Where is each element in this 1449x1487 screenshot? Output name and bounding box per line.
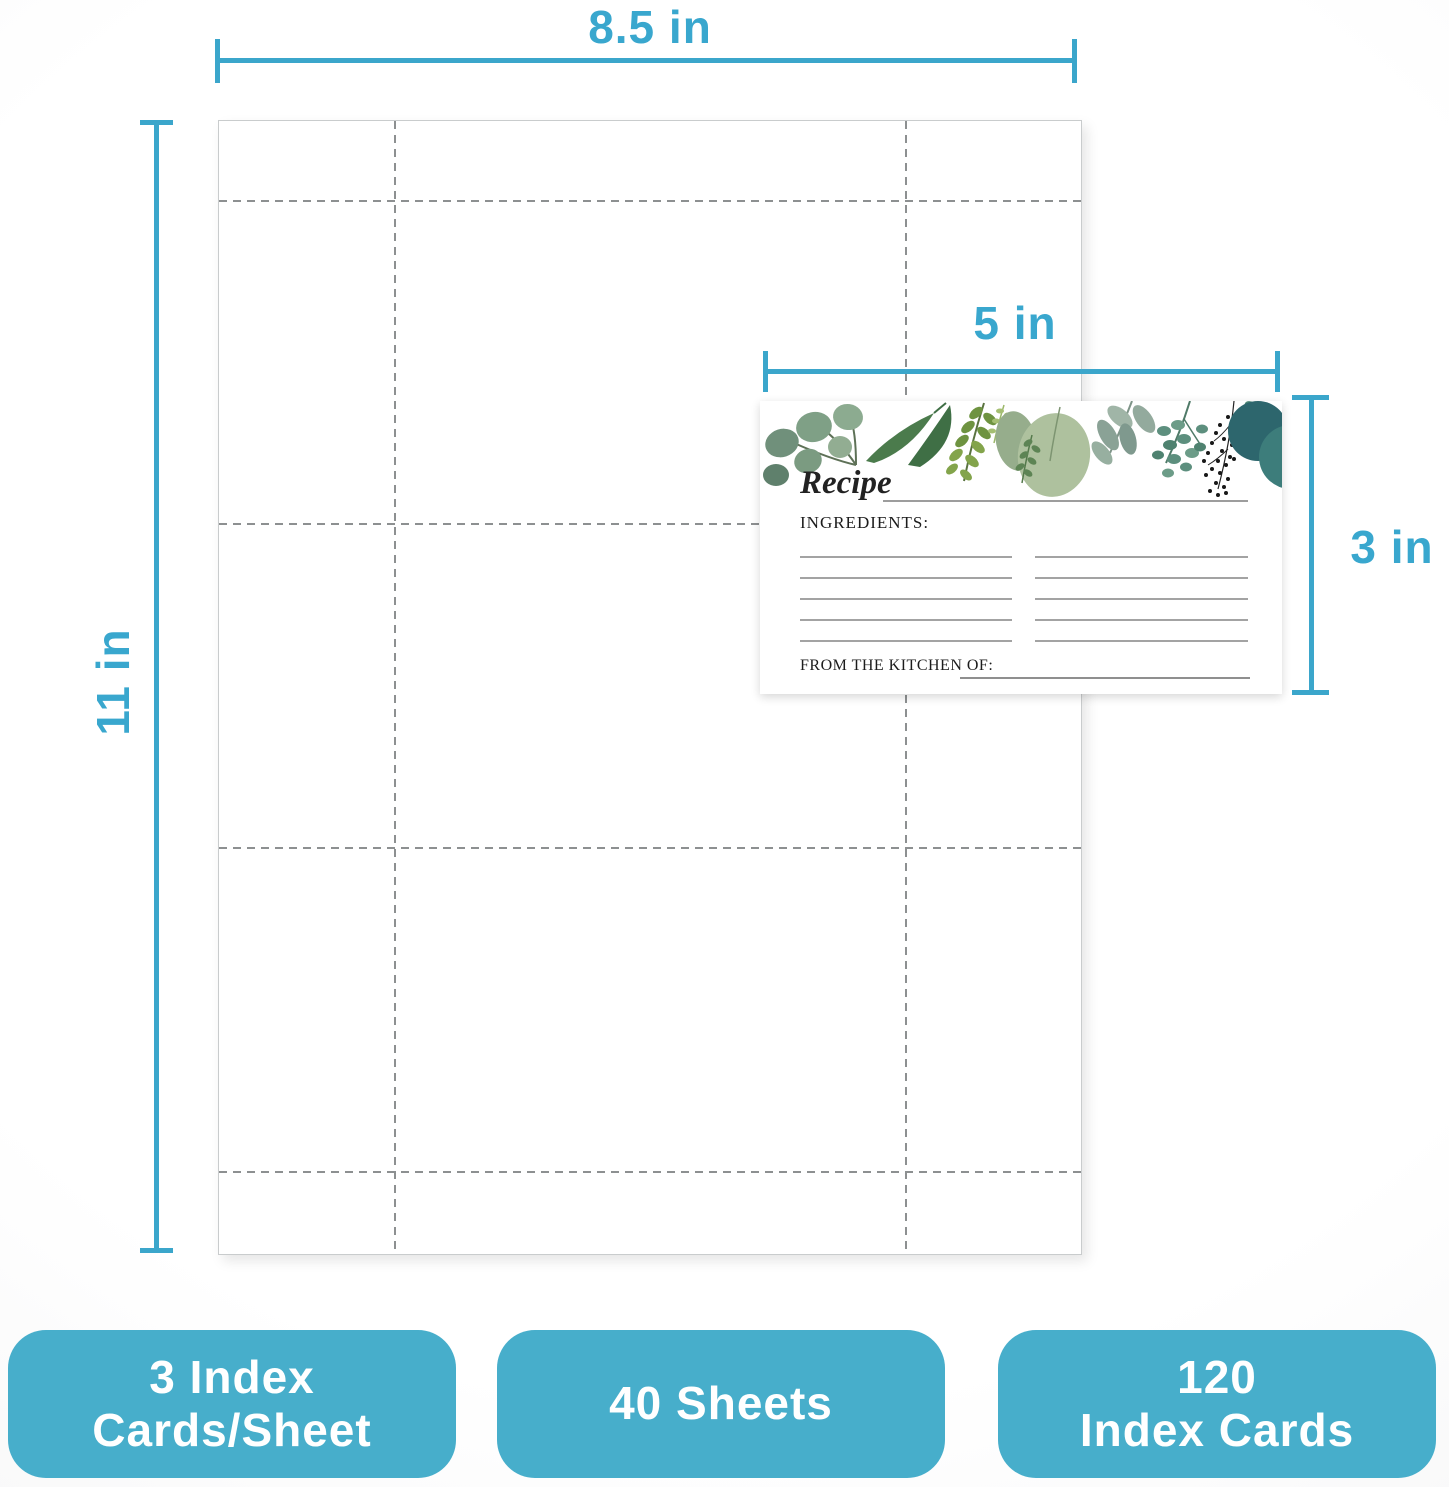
badge-sheet-count-line1: 40 Sheets [609, 1377, 833, 1430]
perforation-line-horizontal-1 [219, 200, 1081, 202]
sheet-width-dimension-cap-right [1072, 39, 1077, 83]
badge-total-cards-line1: 120 [1177, 1351, 1257, 1404]
ingredients-label: INGREDIENTS: [800, 513, 929, 533]
ingredient-line-left-1 [800, 556, 1012, 558]
card-height-dimension-cap-top [1292, 395, 1329, 400]
sheet-height-dimension-cap-bottom [140, 1248, 173, 1253]
ingredient-line-right-1 [1035, 556, 1248, 558]
ingredient-line-right-3 [1035, 598, 1248, 600]
card-height-dimension-line [1309, 397, 1314, 695]
perforation-line-horizontal-3 [219, 847, 1081, 849]
badge-cards-per-sheet: 3 Index Cards/Sheet [8, 1330, 456, 1478]
sheet-height-dimension-cap-top [140, 120, 173, 125]
ingredient-line-right-5 [1035, 640, 1248, 642]
sheet-height-label: 11 in [86, 597, 140, 767]
ingredient-line-left-4 [800, 619, 1012, 621]
perforation-line-horizontal-4 [219, 1171, 1081, 1173]
badge-sheet-count: 40 Sheets [497, 1330, 945, 1478]
card-width-dimension-line [765, 369, 1280, 374]
sheet-width-label: 8.5 in [500, 0, 800, 54]
badge-total-cards-line2: Index Cards [1080, 1404, 1354, 1457]
ingredient-line-right-4 [1035, 619, 1248, 621]
sheet-width-dimension-line [217, 58, 1077, 63]
ingredient-line-right-2 [1035, 577, 1248, 579]
badge-cards-per-sheet-line1: 3 Index [149, 1351, 315, 1404]
ingredient-line-left-2 [800, 577, 1012, 579]
product-dimension-diagram: Recipe INGREDIENTS: FROM THE KITCHEN OF:… [0, 0, 1449, 1487]
card-width-dimension-cap-left [763, 351, 768, 392]
ingredient-line-left-3 [800, 598, 1012, 600]
perforation-line-vertical-1 [394, 121, 396, 1254]
badge-cards-per-sheet-line2: Cards/Sheet [92, 1404, 371, 1457]
recipe-card-title: Recipe [800, 465, 892, 502]
card-height-dimension-cap-bottom [1292, 690, 1329, 695]
ingredient-line-left-5 [800, 640, 1012, 642]
from-kitchen-rule [960, 677, 1250, 679]
sheet-height-dimension-line [154, 120, 159, 1253]
recipe-title-rule [883, 500, 1248, 502]
card-width-label: 5 in [870, 296, 1160, 350]
card-height-label: 3 in [1337, 520, 1447, 574]
card-width-dimension-cap-right [1275, 351, 1280, 392]
from-kitchen-label: FROM THE KITCHEN OF: [800, 657, 993, 675]
sheet-width-dimension-cap-left [215, 39, 220, 83]
recipe-card: Recipe INGREDIENTS: FROM THE KITCHEN OF: [760, 401, 1282, 694]
badge-total-cards: 120 Index Cards [998, 1330, 1436, 1478]
